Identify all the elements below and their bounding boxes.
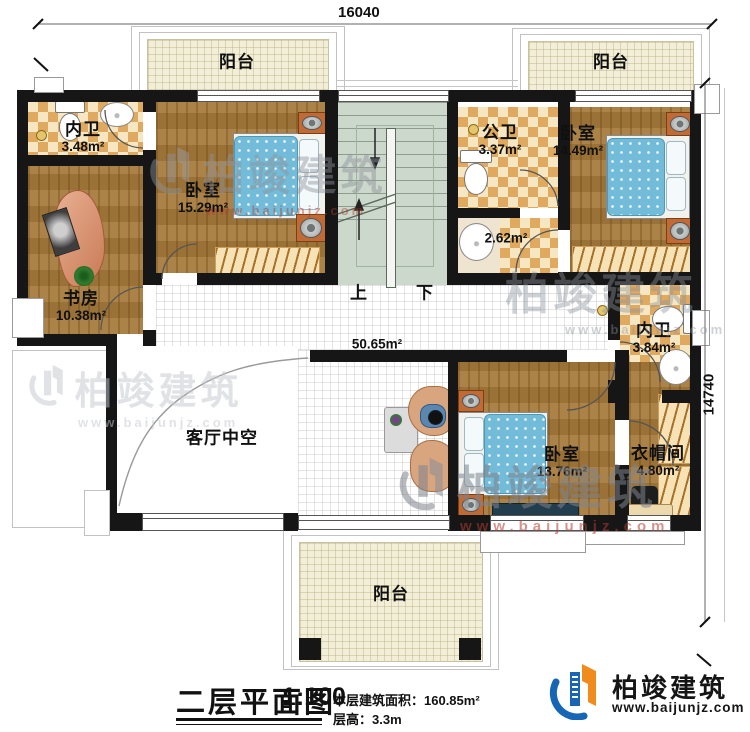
wall-segment: [558, 272, 701, 285]
room-area: 3.48m²: [62, 139, 105, 154]
stair-window: [338, 90, 449, 102]
room-name: 内卫: [633, 321, 676, 340]
pillow: [666, 141, 686, 175]
wall-segment: [669, 515, 701, 531]
room-label-bedroom1: 卧室15.29m²: [178, 181, 228, 215]
lamp: [670, 116, 690, 132]
balcony-door-window: [575, 90, 692, 102]
room-label-bath2: 内卫3.84m²: [633, 321, 676, 355]
pillow: [299, 176, 319, 210]
wall-segment: [558, 90, 570, 230]
bed-blanket: [234, 136, 298, 216]
room-area: 10.38m²: [56, 308, 106, 323]
wall-segment: [325, 90, 338, 285]
room-label-cloak: 衣帽间4.80m²: [631, 444, 685, 478]
person-head: [428, 410, 443, 425]
balcony-door-window: [298, 515, 450, 530]
room-name: 卧室: [553, 124, 603, 143]
stair-down-label: 下: [416, 283, 434, 302]
wall-segment: [448, 515, 490, 531]
room-label-wash: 2.62m²: [485, 230, 528, 245]
title-underline-2: [176, 724, 322, 725]
room-name: 卧室: [537, 445, 587, 464]
wall-segment: [282, 513, 298, 531]
room-area: 4.80m²: [631, 463, 685, 478]
plant: [74, 266, 94, 286]
stair-railing: [386, 128, 396, 288]
wall-segment: [447, 273, 570, 285]
pillow: [299, 139, 319, 173]
bedroom3-window: [627, 515, 671, 531]
brand-url: www.baijunjz.com: [612, 700, 745, 715]
column: [299, 638, 321, 660]
lamp: [462, 498, 480, 512]
living-window: [142, 513, 284, 531]
wall-segment: [447, 90, 458, 285]
wardrobe: [572, 246, 692, 274]
wall-segment: [143, 90, 197, 102]
lamp: [302, 116, 322, 130]
room-label-balcony-tl: 阳台: [219, 52, 255, 71]
toilet-bowl: [464, 163, 488, 195]
wall-segment: [17, 155, 148, 166]
pillow: [464, 453, 484, 487]
wall-segment: [662, 390, 701, 403]
dimension-top: 16040: [338, 4, 380, 21]
light-symbol: [468, 124, 479, 135]
wall-segment: [448, 362, 458, 531]
nightstand: [458, 494, 484, 516]
room-area: 14.49m²: [553, 143, 603, 158]
room-label-bedroom3: 卧室13.76m²: [537, 445, 587, 479]
room-label-balcony-b: 阳台: [373, 584, 409, 603]
nightstand: [458, 390, 484, 412]
room-name: 内卫: [62, 120, 105, 139]
wall-segment: [310, 350, 567, 362]
room-name: 书房: [56, 289, 106, 308]
room-area: 3.37m²: [479, 142, 522, 157]
light-symbol: [597, 305, 608, 316]
pillow: [464, 417, 484, 451]
room-name: 公卫: [479, 123, 522, 142]
bath1-window-box: [34, 77, 64, 93]
lamp: [670, 222, 690, 240]
eave-line: [337, 86, 518, 87]
wall-segment: [608, 285, 620, 340]
room-label-hall-area: 50.65m²: [352, 336, 402, 351]
sill-box: [480, 531, 586, 553]
room-label-bath1: 内卫3.48m²: [62, 120, 105, 154]
room-name: 阳台: [219, 52, 255, 71]
wall-segment: [615, 350, 629, 362]
room-name: 阳台: [373, 584, 409, 603]
bed-blanket: [607, 138, 665, 216]
wall-segment: [143, 150, 156, 285]
room-area: 15.29m²: [178, 200, 228, 215]
eave-line: [337, 80, 518, 81]
wall-segment: [197, 273, 338, 285]
room-label-study: 书房10.38m²: [56, 289, 106, 323]
balcony-door-window: [197, 90, 320, 102]
wall-segment: [615, 362, 629, 420]
wall-segment: [582, 515, 627, 531]
room-area: 50.65m²: [352, 336, 402, 351]
wall-segment: [458, 208, 520, 218]
title-underline: [176, 718, 322, 721]
floor-area-note: 本层建筑面积：160.85m²: [333, 690, 480, 709]
room-label-balcony-tr: 阳台: [593, 52, 629, 71]
bedroom3-window: [490, 515, 584, 531]
room-area: 13.76m²: [537, 464, 587, 479]
nightstand: [298, 112, 326, 134]
lamp: [462, 394, 480, 408]
toilet: [55, 101, 85, 113]
floor-height-note: 层高：3.3m: [333, 709, 402, 728]
lamp: [300, 218, 322, 238]
room-label-bedroom2: 卧室14.49m²: [553, 124, 603, 158]
stair-up-text: 上: [350, 283, 368, 302]
brand-logo-icon: [548, 656, 606, 720]
dimension-right: 14740: [700, 374, 717, 416]
extension-line-right: [724, 88, 725, 622]
stair-down-text: 下: [416, 283, 434, 302]
stair-up-label: 上: [350, 283, 368, 302]
wall-segment: [445, 90, 575, 102]
room-name: 衣帽间: [631, 444, 685, 463]
sill-box: [585, 531, 685, 545]
room-label-pubbath: 公卫3.37m²: [479, 123, 522, 157]
flower-vase: [390, 414, 402, 426]
wardrobe: [215, 247, 320, 274]
room-area: 3.84m²: [633, 340, 676, 355]
light-symbol: [36, 130, 47, 141]
room-name: 客厅中空: [186, 428, 258, 447]
corner-step: [84, 490, 110, 536]
column: [459, 638, 481, 660]
room-label-void: 客厅中空: [186, 428, 258, 447]
sink: [100, 102, 134, 127]
study-window-box: [12, 298, 44, 338]
floor-plan: 16040 14740: [0, 0, 750, 732]
room-area: 2.62m²: [485, 230, 528, 245]
room-name: 卧室: [178, 181, 228, 200]
wall-segment: [156, 273, 162, 285]
bay-window-box: [694, 84, 720, 114]
bath2-bay-box: [692, 310, 710, 346]
nightstand: [296, 214, 326, 242]
room-name: 阳台: [593, 52, 629, 71]
wall-segment: [143, 330, 156, 346]
pillow: [666, 177, 686, 211]
